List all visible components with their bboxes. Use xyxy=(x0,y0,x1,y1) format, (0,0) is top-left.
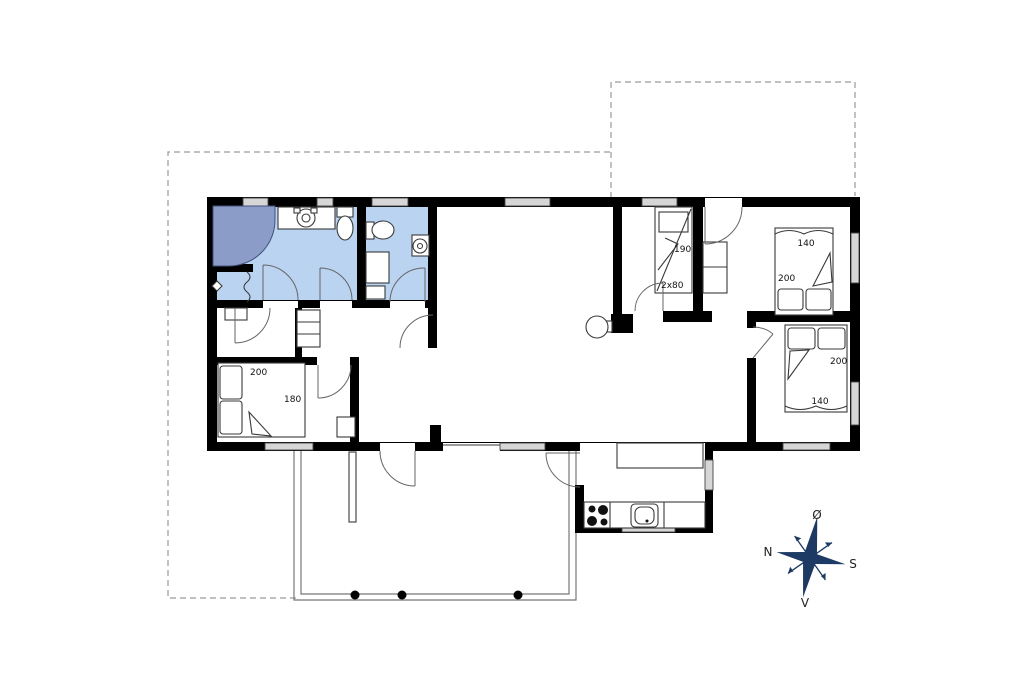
stove-burner-icon xyxy=(587,516,597,526)
compass-label-south: S xyxy=(849,557,857,571)
window-south-3 xyxy=(783,443,830,450)
wood-stove xyxy=(586,316,612,338)
kitchen xyxy=(584,443,705,528)
chimney-block xyxy=(611,314,633,333)
terrace-post xyxy=(514,591,523,600)
window-north-5 xyxy=(642,198,677,206)
bathroom-divider-wall xyxy=(357,197,366,300)
plot-boundary xyxy=(168,82,855,598)
compass-rose: Ø N S V xyxy=(764,508,857,610)
stove-icon xyxy=(586,316,608,338)
stove-wall xyxy=(613,205,622,316)
compass-label-east: Ø xyxy=(812,508,821,522)
bedroom-left-door-swing xyxy=(318,365,351,398)
hall-wall-stub xyxy=(430,425,441,443)
front-door-opening xyxy=(705,198,742,207)
front-door-swing xyxy=(705,207,742,244)
window-south-2 xyxy=(500,443,545,450)
terrace-post xyxy=(398,591,407,600)
bunk-pillow xyxy=(659,212,688,232)
label-bed-left-length: 200 xyxy=(250,368,267,378)
floorplan-page: 140 200 190 2x80 200 140 200 180 Ø N S V xyxy=(0,0,1024,682)
bed-pillow xyxy=(220,401,242,434)
stove-burner-icon xyxy=(601,519,608,526)
bathroom2-door-opening xyxy=(390,301,425,308)
bed-pillow xyxy=(806,289,831,310)
kitchen-peninsula-counter xyxy=(617,443,703,468)
terrace-post xyxy=(351,591,360,600)
label-bed-br-width: 140 xyxy=(811,397,828,407)
compass-label-west: V xyxy=(801,596,810,610)
closet-cabinet xyxy=(225,308,247,320)
shower-tray xyxy=(366,252,389,283)
bed-pillow xyxy=(778,289,803,310)
bunkroom-south-wall xyxy=(663,311,712,322)
window-north-4 xyxy=(505,198,550,206)
plot-boundary-top-right xyxy=(611,82,855,198)
terrace xyxy=(294,451,576,600)
hall-wardrobe xyxy=(297,310,320,347)
window-east-2 xyxy=(851,382,859,425)
faucet-handle-icon xyxy=(294,208,300,213)
terrace-door-swing xyxy=(380,451,415,486)
toilet-bowl-icon xyxy=(337,216,353,240)
bed-pillow xyxy=(818,328,845,349)
compass-label-north: N xyxy=(764,545,773,559)
glass-section-opening xyxy=(443,443,500,451)
bed-pillow xyxy=(788,328,815,349)
washbasin-icon xyxy=(413,239,427,253)
compass-point-north xyxy=(776,547,805,562)
window-kitchen-east xyxy=(705,460,713,490)
sink-drain-icon xyxy=(646,520,649,523)
compass-point-south xyxy=(815,554,846,569)
label-bed-left-width: 180 xyxy=(284,395,301,405)
terrace-privacy-screen xyxy=(349,452,356,522)
bedroom-br-west-wall xyxy=(747,358,756,451)
window-north-2 xyxy=(317,198,333,206)
bath-cabinet xyxy=(366,286,385,299)
label-bunk-length: 190 xyxy=(674,245,691,255)
label-bunk-size: 2x80 xyxy=(661,281,684,291)
wardrobe-body xyxy=(297,310,320,347)
window-south-1 xyxy=(265,443,313,450)
bathroom1-door-opening-b xyxy=(320,301,352,308)
bathroom1-door-opening-a xyxy=(263,301,298,308)
bedside-table xyxy=(337,417,355,437)
label-bed-tr-length: 200 xyxy=(778,274,795,284)
bedroom-br-door-swing xyxy=(753,327,773,358)
faucet-handle-icon xyxy=(311,208,317,213)
kitchen-terrace-door-swing xyxy=(546,453,580,487)
stove-burner-icon xyxy=(598,505,608,515)
terrace-door-opening xyxy=(380,443,415,451)
toilet-bowl-icon xyxy=(372,221,394,239)
bed-pillow xyxy=(220,366,242,399)
terrace-outline-outer xyxy=(294,451,576,600)
label-bed-br-length: 200 xyxy=(830,357,847,367)
terrace-outline-inner xyxy=(301,451,569,594)
label-bed-tr-width: 140 xyxy=(797,239,814,249)
window-north-3 xyxy=(372,198,408,206)
compass-point-west xyxy=(797,563,815,599)
floorplan-drawing: 140 200 190 2x80 200 140 200 180 Ø N S V xyxy=(0,0,1024,682)
hall-wall xyxy=(428,197,437,348)
bunkroom-east-wall xyxy=(693,197,703,322)
stove-burner-icon xyxy=(589,506,596,513)
window-east-1 xyxy=(851,233,859,283)
window-north-1 xyxy=(243,198,268,206)
